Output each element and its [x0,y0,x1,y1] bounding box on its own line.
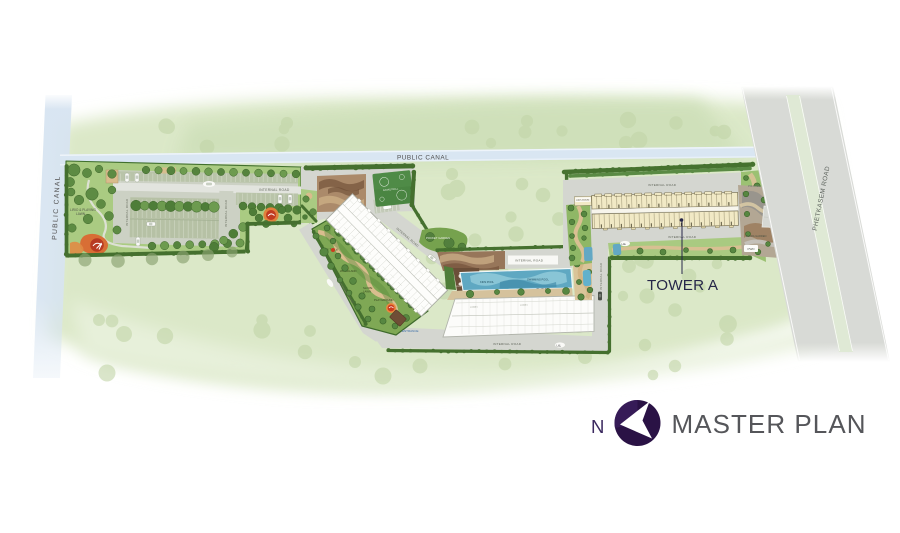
svg-text:INTERNAL ROAD: INTERNAL ROAD [493,342,522,346]
svg-text:N: N [591,416,604,437]
svg-text:INTERNAL ROAD: INTERNAL ROAD [259,188,290,192]
svg-text:KIDS POOL: KIDS POOL [480,280,495,284]
svg-text:INTERNAL ROAD: INTERNAL ROAD [599,262,603,290]
svg-text:ENTRANCE: ENTRANCE [402,329,419,333]
svg-text:LOBBY: LOBBY [520,304,528,307]
svg-text:PLAYGROUND: PLAYGROUND [374,298,393,302]
svg-text:LOBBY: LOBBY [470,306,478,309]
svg-text:LAWN: LAWN [76,212,86,216]
svg-text:KIDS ROOM: KIDS ROOM [576,200,589,202]
svg-text:INTERNAL ROAD: INTERNAL ROAD [125,198,129,226]
svg-text:TOWER A: TOWER A [647,277,719,294]
svg-text:INTERNAL ROAD: INTERNAL ROAD [648,183,677,187]
svg-text:MASTER PLAN: MASTER PLAN [672,409,867,439]
svg-text:L&L: L&L [557,343,562,347]
svg-text:PUBLIC CANAL: PUBLIC CANAL [397,155,449,162]
svg-text:SWIMMING POOL: SWIMMING POOL [527,278,549,282]
svg-text:POCKET GARDEN: POCKET GARDEN [426,236,450,240]
svg-text:LAWN: LAWN [363,290,371,294]
svg-text:L&L: L&L [622,242,627,246]
svg-text:INTERNAL ROAD: INTERNAL ROAD [515,259,544,263]
svg-text:PWD: PWD [748,247,756,251]
svg-text:FLORA GARDEN: FLORA GARDEN [746,234,766,238]
svg-text:INTERNAL ROAD: INTERNAL ROAD [224,199,228,227]
